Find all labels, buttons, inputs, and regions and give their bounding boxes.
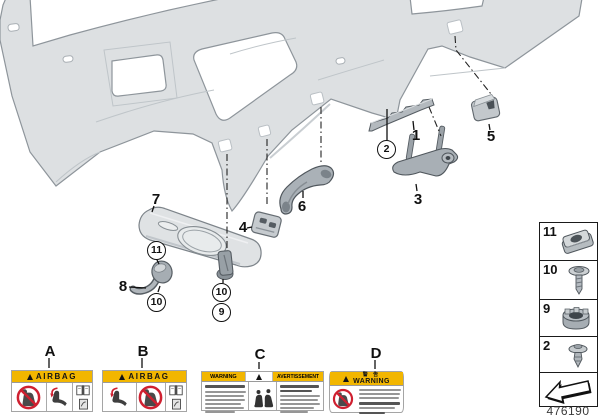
- prohibited-childseat-pictogram: [12, 383, 47, 411]
- label-letter-d: D: [367, 345, 385, 362]
- airbag-deploy-pictogram: [47, 383, 73, 411]
- fastener-number: 11: [543, 224, 557, 239]
- seat-pictogram-pair: [248, 382, 277, 410]
- warning-text-cn: [356, 386, 403, 412]
- warning-cn-header: 警 告 WARNING: [330, 372, 403, 386]
- fastener-table: 11 10 9: [539, 222, 598, 407]
- warning-label-d: 警 告 WARNING: [329, 371, 404, 413]
- callout-9-circled[interactable]: 9: [212, 303, 231, 322]
- warning-triangle-icon: [343, 376, 349, 382]
- direction-arrow-box: [540, 373, 597, 406]
- warning-label-c: WARNING AVERTISSEMENT: [201, 371, 324, 411]
- warning-fr-header: AVERTISSEMENT: [273, 372, 323, 381]
- direction-arrow-icon: [540, 373, 595, 405]
- callout-6[interactable]: 6: [293, 198, 311, 216]
- callout-10-circled-left[interactable]: 10: [147, 293, 166, 312]
- fastener-number: 10: [543, 262, 557, 277]
- fastener-number: 2: [543, 338, 550, 353]
- fastener-number: 9: [543, 301, 550, 316]
- callout-7[interactable]: 7: [147, 191, 165, 209]
- fastener-row-9[interactable]: 9: [540, 300, 597, 337]
- warning-triangle-icon: [27, 374, 33, 380]
- warning-label-a: AIRBAG: [11, 370, 93, 412]
- callout-1[interactable]: 1: [407, 127, 425, 145]
- label-letter-a: A: [41, 343, 59, 360]
- clip-housing: [470, 94, 500, 122]
- stud-bracket: [393, 126, 458, 176]
- grommet-icon: [555, 302, 597, 334]
- warning-triangle-icon: [119, 374, 125, 380]
- airbag-label-text: AIRBAG: [36, 372, 77, 381]
- screw-icon: [557, 263, 597, 298]
- fastener-row-2[interactable]: 2: [540, 337, 597, 373]
- callout-2-circled[interactable]: 2: [377, 140, 396, 159]
- airbag-label-text: AIRBAG: [128, 372, 169, 381]
- warning-label-b: AIRBAG: [102, 370, 187, 412]
- parts-diagram-page: 7 8 1 3 4 5 6 2 11 10 10 9 A B C D 11 10…: [0, 0, 600, 420]
- expansion-rivet-icon: [557, 339, 597, 372]
- warning-triangle-zone: [245, 372, 273, 381]
- warning-text-en: [202, 382, 248, 410]
- warning-text-fr: [277, 382, 323, 410]
- callout-5[interactable]: 5: [482, 128, 500, 146]
- label-letter-b: B: [134, 343, 152, 360]
- clip-nut-icon: [557, 225, 597, 257]
- fastener-row-11[interactable]: 11: [540, 223, 597, 261]
- visor-pivot-mount: [217, 250, 233, 279]
- callout-8[interactable]: 8: [114, 278, 132, 296]
- warning-triangle-icon: [256, 374, 262, 380]
- callout-3[interactable]: 3: [409, 191, 427, 209]
- prohibited-childseat-pictogram: [330, 386, 356, 412]
- bracket-plate: [251, 211, 282, 238]
- callout-11-circled[interactable]: 11: [147, 241, 166, 260]
- airbag-label-header: AIRBAG: [103, 371, 186, 383]
- manual-book-pictogram: [166, 383, 187, 411]
- warning-en-text: WARNING: [353, 378, 390, 385]
- callout-4[interactable]: 4: [234, 219, 252, 237]
- prohibited-childseat-pictogram: [137, 383, 165, 411]
- document-number: 476190: [538, 404, 598, 418]
- warning-en-header: WARNING: [202, 372, 245, 381]
- airbag-label-header: AIRBAG: [12, 371, 92, 383]
- airbag-deploy-pictogram: [103, 383, 137, 411]
- manual-book-pictogram: [73, 383, 92, 411]
- callout-10-circled-mid[interactable]: 10: [212, 283, 231, 302]
- label-letter-c: C: [251, 346, 269, 363]
- fastener-row-10[interactable]: 10: [540, 261, 597, 300]
